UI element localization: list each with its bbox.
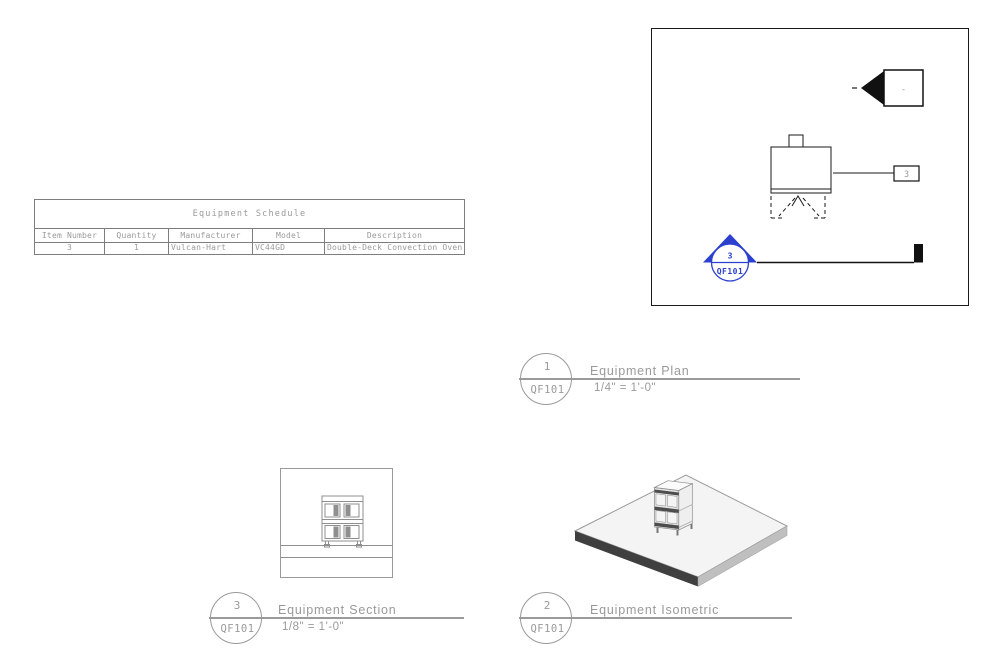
view-title-isometric: 2 QF101 Equipment Isometric — [519, 592, 793, 650]
oven-left-leg — [326, 541, 329, 545]
sheet-number: QF101 — [211, 623, 264, 635]
oven-iso-upper-right-door — [668, 495, 678, 507]
oven-elevation-body — [322, 496, 363, 541]
oven-upper-right-handle — [346, 505, 351, 516]
oven-iso-lower-right-door — [668, 512, 678, 524]
drawing-sheet: Equipment Schedule Item Number Quantity … — [0, 0, 999, 658]
oven-lower-right-handle — [346, 527, 351, 538]
equipment-schedule-table[interactable]: Equipment Schedule Item Number Quantity … — [34, 199, 465, 255]
section-callout[interactable]: 3 QF101 — [703, 234, 923, 281]
section-marker[interactable]: - — [852, 70, 923, 106]
detail-number-circle[interactable]: 3 QF101 — [210, 592, 262, 644]
door-swing-dashed — [771, 196, 825, 218]
detail-number: 2 — [521, 599, 574, 612]
schedule-cell-quantity: 1 — [105, 243, 169, 254]
detail-number-circle[interactable]: 1 QF101 — [520, 353, 572, 405]
schedule-header-model: Model — [253, 229, 325, 243]
detail-number-circle[interactable]: 2 QF101 — [520, 592, 572, 644]
oven-plan-symbol[interactable] — [771, 135, 831, 218]
view-scale: 1/8" = 1'-0" — [282, 621, 344, 633]
section-marker-label: - — [901, 85, 906, 95]
section-arrow-icon — [861, 71, 884, 105]
view-name: Equipment Isometric — [590, 603, 719, 617]
oven-iso-leg-front-left — [657, 527, 659, 533]
schedule-data-row[interactable]: 3 1 Vulcan-Hart VC44GD Double-Deck Conve… — [35, 243, 464, 254]
schedule-header-quantity: Quantity — [105, 229, 169, 243]
section-viewport[interactable] — [280, 468, 393, 578]
oven-iso-lower-left-door — [656, 511, 666, 523]
sheet-number: QF101 — [521, 623, 574, 635]
sheet-number: QF101 — [521, 384, 574, 396]
schedule-cell-item-number: 3 — [35, 243, 105, 254]
schedule-header-manufacturer: Manufacturer — [169, 229, 253, 243]
detail-number: 3 — [211, 599, 264, 612]
equipment-tag[interactable]: 3 — [833, 166, 919, 181]
oven-plan-body — [771, 147, 831, 193]
oven-right-leg — [358, 541, 361, 545]
schedule-cell-manufacturer: Vulcan-Hart — [169, 243, 253, 254]
oven-plan-vent — [789, 135, 803, 147]
oven-iso-right-face — [679, 484, 693, 530]
view-title-plan: 1 QF101 Equipment Plan 1/4" = 1'-0" — [519, 353, 801, 411]
oven-upper-left-handle — [334, 505, 339, 516]
schedule-title: Equipment Schedule — [35, 200, 464, 229]
plan-viewport[interactable]: - 3 — [651, 28, 969, 306]
detail-number: 1 — [521, 360, 574, 373]
view-scale: 1/4" = 1'-0" — [594, 382, 656, 394]
tag-label: 3 — [904, 170, 909, 180]
schedule-header-item-number: Item Number — [35, 229, 105, 243]
schedule-header-row: Item Number Quantity Manufacturer Model … — [35, 229, 464, 243]
isometric-viewport[interactable] — [565, 455, 805, 595]
view-title-section: 3 QF101 Equipment Section 1/8" = 1'-0" — [209, 592, 465, 650]
schedule-cell-description: Double-Deck Convection Oven — [325, 243, 464, 254]
oven-section-elevation[interactable] — [322, 496, 363, 547]
oven-plan-peak — [792, 196, 804, 206]
oven-iso-upper-left-door — [656, 494, 666, 506]
section-line-end-bar — [914, 244, 923, 263]
callout-sheet-number: QF101 — [717, 267, 744, 276]
oven-lower-left-handle — [334, 527, 339, 538]
view-name: Equipment Section — [278, 603, 397, 617]
oven-iso-leg-front-right — [677, 530, 679, 536]
view-name: Equipment Plan — [590, 364, 689, 378]
schedule-cell-model: VC44GD — [253, 243, 325, 254]
schedule-header-description: Description — [325, 229, 464, 243]
callout-detail-number: 3 — [728, 252, 733, 261]
